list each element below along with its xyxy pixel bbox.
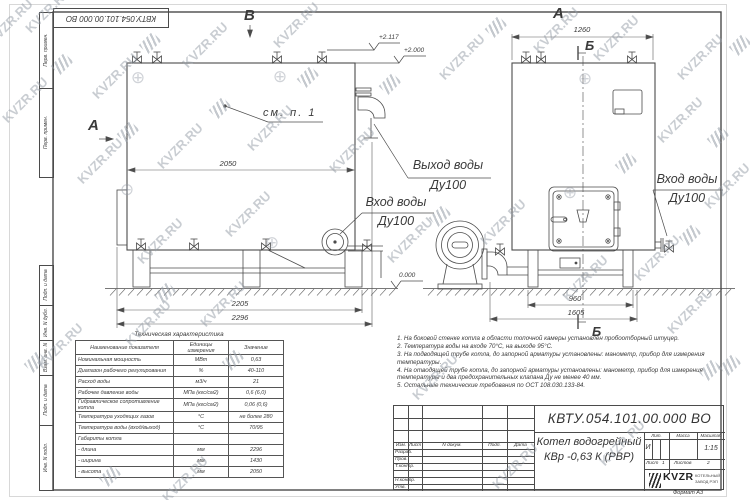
tb-mass-label: Масса [669,433,697,438]
tech-units: МПа (кгс/см2) [174,399,229,412]
tech-col-units: Единицы измерения [174,341,229,355]
tech-table-row: Габариты котла [76,434,284,445]
tech-units: МПа (кгс/см2) [174,388,229,399]
tech-table-row: - ширинамм1430 [76,456,284,467]
note-item: 4. На отводящей трубе котла, до запорной… [397,367,723,382]
tech-name: Номинальная мощность [76,355,174,366]
title-block: Изм. Лист N докум. Подп. Дата Разраб. Пр… [393,405,724,490]
tb-sheet-value: 1 [662,461,665,466]
view-label-a: А [553,6,564,23]
tech-value: 21 [229,377,284,388]
callout-see-note: см. п. 1 [263,107,316,119]
tb-lit-value: И [644,444,652,451]
tb-col-list: Лист [408,443,422,448]
margin-cell-label: Взам. инв. N [40,340,53,375]
section-label-b-top: Б [585,39,594,53]
tb-lit-label: Лит. [644,433,669,438]
tech-table-row: Диапазон рабочего регулирования%40-110 [76,366,284,377]
tech-value: 2296 [229,445,284,456]
tech-units: мм [174,445,229,456]
top-stamp-doc-number: КВТУ.054.101.00.000 ВО [53,8,169,28]
tech-table-row: - высотамм2050 [76,467,284,478]
kvzr-company-line2: ЗАВОД РЭП [695,479,718,484]
tb-doc-number: КВТУ.054.101.00.000 ВО [534,406,725,432]
tech-name: Гидравлическое сопротивление котла [76,399,174,412]
margin-cell-label: Подп. и дата [40,375,53,425]
tech-table-row: Гидравлическое сопротивление котлаМПа (к… [76,399,284,412]
elevation-zero: 0.000 [399,272,415,279]
note-item: 5. Остальные технические требования по О… [397,382,723,390]
tech-name: Диапазон рабочего регулирования [76,366,174,377]
tech-units: мм [174,456,229,467]
tech-table-row: Расход водым3/ч21 [76,377,284,388]
view-label-v: В [244,8,255,25]
dim-1260: 1260 [562,26,602,34]
margin-cell-label: Инв. N дубл. [40,305,53,340]
callout-water-inlet-right-dn: Ду100 [650,192,724,206]
note-item: 3. На подводящей трубе котла, до запорно… [397,351,723,366]
tech-units: м3/ч [174,377,229,388]
margin-cell-label: Перв. примен. [40,88,53,177]
kvzr-company-line1: КОТЕЛЬНЫЙ [695,473,720,478]
tech-units [174,434,229,445]
tb-sheets-value: 2 [707,461,710,466]
view-label-a-arrow: А [88,118,99,135]
dim-2296: 2296 [218,314,262,322]
technical-notes: 1. На боковой стенке котла в области топ… [397,335,723,390]
tech-units: мм [174,467,229,478]
tech-name: Расход воды [76,377,174,388]
tb-row-nkontr: Н.контр. [395,478,415,483]
tech-value: 0,06 (0,6) [229,399,284,412]
tech-units: % [174,366,229,377]
tech-table-row: - длинамм2296 [76,445,284,456]
tech-units: °С [174,412,229,423]
margin-cell-label: Инв. N подл. [40,425,53,490]
tb-sheets-label: Листов [674,461,691,466]
dim-960: 960 [558,295,592,303]
tb-row-prov: Пров. [395,457,408,462]
tb-col-podp: Подп. [482,443,507,448]
kvzr-brand: KVZR [663,471,694,483]
dim-2050: 2050 [197,160,259,168]
drawing-sheet: КВТУ.054.101.00.000 ВО Перв. примен.Перв… [0,0,750,500]
tb-row-tkontr: Т.контр. [395,464,414,469]
margin-cell-label: Перв. примен. [40,12,53,88]
tech-name: Рабочее давление воды [76,388,174,399]
margin-cell-label: Подп. и дата [40,265,53,305]
tech-characteristics: Техническая характеристика Наименование … [75,331,284,478]
tb-col-ndocum: N докум. [422,443,482,448]
tb-col-data: Дата [507,443,534,448]
tech-value: не более 280 [229,412,284,423]
tech-value: 2050 [229,467,284,478]
tb-row-razrab: Разраб. [395,450,412,455]
callout-water-inlet-left: Вход воды [357,196,435,210]
tech-col-name: Наименование показателя [76,341,174,355]
tech-name: - ширина [76,456,174,467]
callout-water-outlet-dn: Ду100 [405,179,491,193]
dim-2205: 2205 [218,300,262,308]
elevation-2000: +2.000 [404,47,424,54]
tech-table: Наименование показателя Единицы измерени… [75,340,284,478]
dim-1605: 1605 [556,309,596,317]
tech-value: 40-110 [229,366,284,377]
tech-name: Габариты котла [76,434,174,445]
leaders-and-marks [99,25,723,329]
callout-water-inlet-right: Вход воды [650,173,724,187]
tb-scale-value: 1:15 [697,445,725,452]
tech-table-title: Техническая характеристика [75,331,283,338]
tech-units: МВт [174,355,229,366]
tech-units: °С [174,423,229,434]
note-item: 1. На боковой стенке котла в области топ… [397,335,723,343]
callout-water-inlet-left-dn: Ду100 [357,215,435,229]
tech-value: 1430 [229,456,284,467]
tech-name: - длина [76,445,174,456]
tech-table-row: Рабочее давление водыМПа (кгс/см2)0,6 (6… [76,388,284,399]
tb-scale-label: Масштаб [697,433,725,438]
kvzr-logo-icon [649,473,661,488]
tb-product-name-2: КВр -0,63 К (РВР) [534,451,644,463]
tech-value [229,434,284,445]
tech-value: 0,63 [229,355,284,366]
tech-value: 0,6 (6,0) [229,388,284,399]
tech-table-row: Номинальная мощностьМВт0,63 [76,355,284,366]
format-label: Формат А3 [645,490,731,496]
tech-name: - высота [76,467,174,478]
tb-sheet-label: Лист [646,461,658,466]
tech-value: 70/95 [229,423,284,434]
tech-table-row: Температура уходящих газов°Сне более 280 [76,412,284,423]
left-view [117,52,385,287]
tech-name: Температура уходящих газов [76,412,174,423]
callout-water-outlet: Выход воды [405,159,491,173]
tech-col-value: Значение [229,341,284,355]
tb-col-izm: Изм. [394,443,408,448]
ground-hatch [110,289,731,296]
tb-row-utv: Утв. [395,485,406,490]
tech-table-row: Температура воды (вход/выход)°С70/95 [76,423,284,434]
tech-name: Температура воды (вход/выход) [76,423,174,434]
note-item: 2. Температура воды на входе 70°С, на вы… [397,343,723,351]
dimension-lines [117,34,653,328]
elevation-2117: +2.117 [379,34,399,41]
tb-product-name-1: Котел водогрейный [534,436,644,448]
